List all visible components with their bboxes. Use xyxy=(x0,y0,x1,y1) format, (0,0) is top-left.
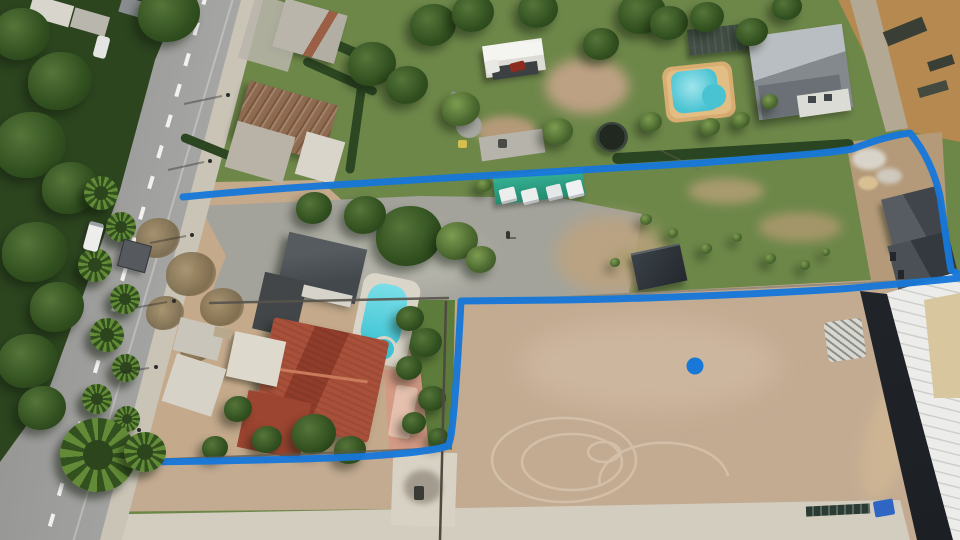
tire-track-circles xyxy=(492,418,728,502)
blue-marker-dot xyxy=(687,358,704,375)
palm-tree xyxy=(124,432,166,472)
aerial-photo-stage xyxy=(0,0,960,540)
boundary-path-top xyxy=(183,133,960,275)
utility-poles xyxy=(137,93,230,432)
property-boundary-line xyxy=(76,133,960,463)
boundary-path-bottom xyxy=(76,278,960,463)
fence-lines xyxy=(92,150,940,540)
utility-pole-shadows xyxy=(117,96,222,373)
